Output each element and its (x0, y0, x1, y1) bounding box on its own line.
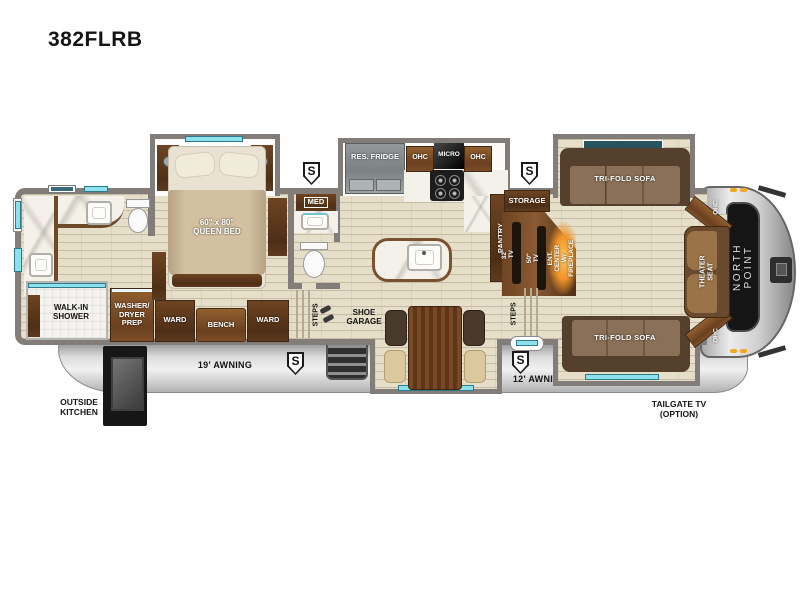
hitch-pin-knob (776, 263, 787, 276)
ohc-left-label: OHC (406, 151, 434, 165)
dinette-table (408, 306, 462, 390)
outside-kitchen-label: OUTSIDE KITCHEN (50, 396, 108, 420)
dinette-chair (384, 350, 406, 383)
living-step-line (524, 288, 526, 338)
fridge-drawer (376, 179, 401, 191)
burner (435, 188, 446, 199)
res-fridge-label: RES. FRIDGE (345, 150, 405, 164)
kitchen-counter-return (464, 196, 492, 232)
micro-label: MICRO (434, 148, 464, 162)
bedroom-step-line (302, 290, 304, 338)
burner (449, 188, 460, 199)
bench-label: BENCH (196, 318, 246, 332)
queen-bed-label: 60" x 80" QUEEN BED (168, 214, 266, 240)
tv-32-label: 32" TV (501, 226, 515, 282)
bedroom-closet-right (268, 198, 287, 256)
rear-window-glass (15, 201, 21, 229)
page-title: 382FLRB (48, 28, 143, 52)
speaker-marker: S (287, 352, 304, 375)
shower-bench (28, 295, 40, 337)
burner (449, 175, 460, 186)
wall-midbath-bottom-left (288, 283, 302, 289)
washer-dryer-label: WASHER/ DRYER PREP (110, 295, 154, 335)
walk-in-shower-label: WALK-IN SHOWER (40, 298, 102, 326)
bedroom-cabinet-left (152, 252, 166, 300)
speaker-marker: S (512, 351, 529, 374)
midbath-sink (301, 213, 329, 230)
ward-right-label: WARD (247, 313, 289, 327)
wall-bedroom-midbath (288, 192, 294, 285)
bath-sink-top (86, 201, 112, 225)
bed-pillow-right (218, 151, 260, 179)
dinette-chair (464, 350, 486, 383)
rear-window-lower (14, 248, 22, 272)
island-faucet (422, 251, 426, 255)
marker-light (730, 349, 737, 353)
living-step-line (530, 288, 532, 338)
dinette-chair (463, 310, 485, 346)
burner (435, 175, 446, 186)
dinette-chair (385, 310, 407, 346)
washer-glass-strip (112, 289, 152, 292)
wall-bath-bedroom (148, 190, 155, 236)
ent-center-label: ENT. CENTER W/ FIREPLACE (549, 226, 573, 290)
entry-door-front-window (516, 340, 538, 346)
med-cabinet-label: MED (296, 194, 336, 211)
bath-sink-side (29, 253, 53, 277)
ward-left-label: WARD (155, 313, 195, 327)
midbath-toilet-bowl (303, 250, 325, 278)
rear-toilet-tank (126, 199, 150, 208)
sofa-top-label: TRI-FOLD SOFA (568, 172, 682, 186)
bedroom-slide-window (185, 136, 243, 142)
outside-kitchen-screen (111, 357, 144, 411)
awning-19-label: 19' AWNING (175, 358, 275, 372)
wall-midbath-bottom-right (316, 283, 340, 289)
ohc-corner-bottom-label: OHC (710, 324, 723, 348)
ohc-corner-top-label: OHC (710, 196, 723, 220)
bedroom-step-line (296, 290, 298, 338)
bed-pillow-left (174, 151, 216, 179)
brand-name-text: NORTH POINT (732, 243, 754, 291)
storage-label: STORAGE (504, 194, 550, 208)
floorplan-page: 382FLRB OUTSIDE KITCHEN 19' AWNING 12' A… (0, 0, 800, 600)
sofa-bottom-label: TRI-FOLD SOFA (568, 331, 682, 345)
ohc-right-label: OHC (464, 151, 492, 165)
bath-skylight-glass (51, 187, 73, 191)
island-sink (407, 244, 442, 271)
bed-foot-runner (172, 274, 262, 287)
rear-toilet-bowl (128, 208, 148, 233)
living-step-line (536, 288, 538, 338)
fridge-drawer (349, 179, 374, 191)
bedroom-steps-label: STEPS (308, 293, 324, 337)
tv-50-label: 50" TV (526, 229, 540, 287)
marker-light (730, 188, 737, 192)
living-steps-label: STEPS (506, 292, 522, 336)
bath-window (84, 186, 108, 192)
midbath-toilet-tank (300, 242, 328, 250)
tailgate-tv-label: TAILGATE TV (OPTION) (634, 397, 724, 423)
speaker-marker: S (521, 162, 538, 185)
sofa-bottom-window (585, 374, 659, 380)
speaker-marker: S (303, 162, 320, 185)
marker-light (740, 188, 747, 192)
theater-seat-label: THEATER SEAT (700, 240, 714, 304)
brand-name: NORTH POINT (726, 202, 760, 332)
shower-glass (28, 283, 106, 288)
marker-light (740, 349, 747, 353)
